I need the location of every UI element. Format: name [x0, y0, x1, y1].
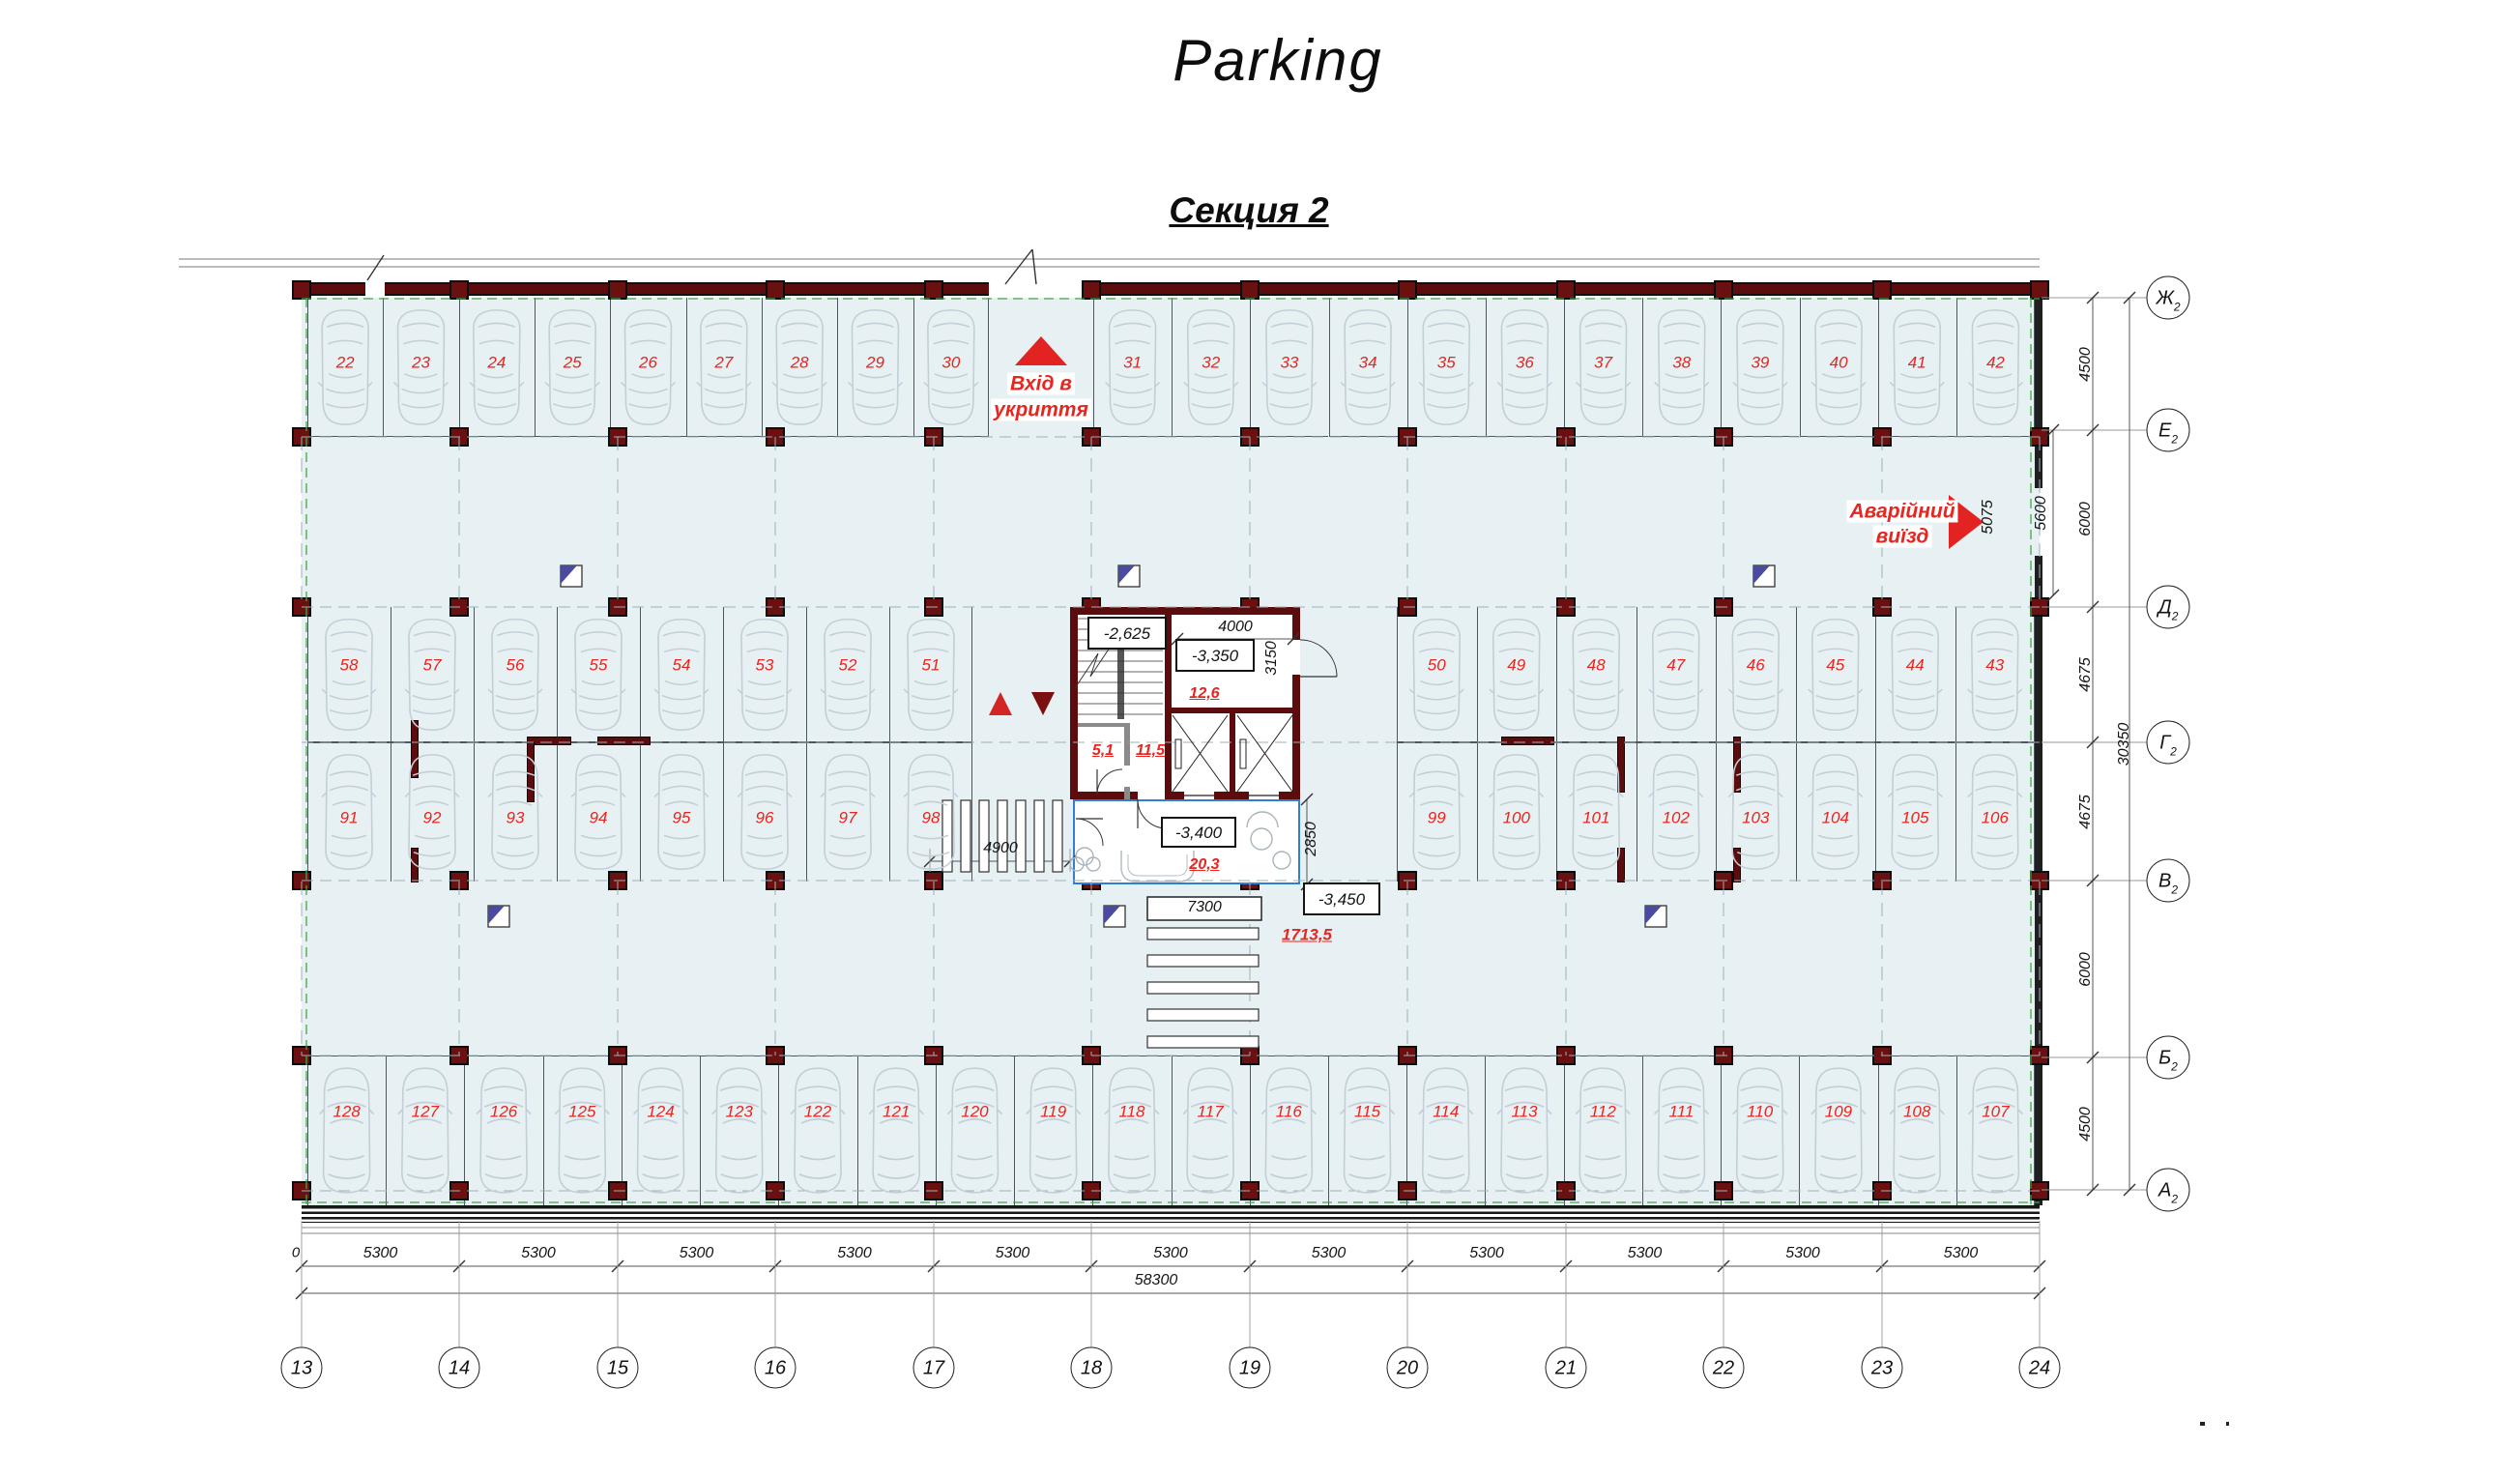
parking-space-number: 40	[1830, 355, 1848, 371]
bay-dimension: 5300	[1785, 1246, 1820, 1261]
parking-space-number: 95	[673, 810, 691, 826]
shelter-wall-segment	[1501, 737, 1554, 745]
structural-column	[1240, 427, 1260, 447]
bay-dimension: 5300	[521, 1246, 556, 1261]
parking-space	[1637, 607, 1717, 742]
axis-spacing-dimension: 4675	[2078, 795, 2094, 829]
structural-column	[449, 597, 469, 617]
structural-column	[608, 1181, 627, 1200]
parking-space-number: 45	[1826, 657, 1844, 674]
structural-column	[1082, 280, 1101, 300]
structural-column	[1714, 427, 1733, 447]
structural-column	[449, 1046, 469, 1065]
parking-space-number: 101	[1582, 810, 1609, 826]
shelter-entrance-label-line1: Вхід в	[1007, 373, 1075, 395]
parking-space	[1875, 607, 1955, 742]
core-wall	[1230, 708, 1235, 799]
parking-space	[391, 607, 474, 742]
core-partition	[1124, 723, 1130, 766]
level-mark-lobby: -3,400	[1161, 817, 1236, 848]
parking-space-number: 124	[647, 1104, 674, 1120]
parking-space-number: 22	[336, 355, 355, 371]
parking-space-number: 52	[839, 657, 857, 674]
structural-column	[766, 1046, 785, 1065]
parking-space-number: 34	[1359, 355, 1377, 371]
axis-spacing-dimension: 4500	[2078, 1107, 2094, 1142]
parking-space-number: 113	[1511, 1104, 1537, 1120]
structural-column	[766, 427, 785, 447]
bay-dimension: 5300	[1469, 1246, 1504, 1261]
parking-space-number: 112	[1590, 1104, 1616, 1120]
parking-space-number: 41	[1908, 355, 1926, 371]
parking-space-number: 48	[1587, 657, 1606, 674]
axis-bubble-subscript: 2	[2171, 1061, 2178, 1073]
parking-space	[889, 607, 972, 742]
parking-space-number: 119	[1040, 1104, 1066, 1120]
axis-bubble-bottom: 21	[1546, 1347, 1587, 1389]
parking-space-number: 38	[1672, 355, 1691, 371]
parking-space-number: 32	[1202, 355, 1220, 371]
structural-column	[292, 871, 311, 890]
structural-column	[1398, 427, 1417, 447]
parking-space-number: 30	[941, 355, 960, 371]
parking-space-number: 123	[726, 1104, 753, 1120]
structural-column	[924, 597, 943, 617]
parking-space-number: 118	[1118, 1104, 1144, 1120]
axis-spacing-dimension: 6000	[2078, 952, 2094, 987]
shelter-wall-segment	[411, 848, 419, 882]
parking-space-number: 114	[1433, 1104, 1459, 1120]
parking-space	[307, 1056, 386, 1205]
structural-column	[1556, 597, 1576, 617]
parking-space	[1716, 607, 1796, 742]
core-wall	[1292, 607, 1300, 640]
axis-bubble-subscript: 2	[2174, 302, 2181, 313]
parking-space-number: 122	[804, 1104, 831, 1120]
axis-bubble-bottom: 15	[597, 1347, 639, 1389]
dim-exit-width: 5075	[1981, 500, 1996, 535]
shelter-wall-segment	[411, 720, 419, 778]
dim-total-height: 30350	[2117, 723, 2132, 766]
dim-exit-bay: 5600	[2034, 496, 2049, 531]
structural-column	[292, 597, 311, 617]
parking-space-number: 31	[1123, 355, 1142, 371]
axis-bubble-bottom: 24	[2019, 1347, 2061, 1389]
parking-space	[1477, 607, 1557, 742]
structural-column	[292, 1181, 311, 1200]
axis-spacing-dimension: 6000	[2078, 502, 2094, 536]
structural-column	[1872, 1046, 1892, 1065]
structural-column	[2030, 1046, 2049, 1065]
parking-space-number: 58	[340, 657, 359, 674]
parking-space-number: 115	[1354, 1104, 1380, 1120]
parking-space-number: 36	[1516, 355, 1534, 371]
axis-bubble-right: В2	[2147, 859, 2190, 903]
structural-column	[2030, 280, 2049, 300]
exterior-wall-right	[2035, 298, 2042, 488]
parking-space-number: 51	[922, 657, 941, 674]
parking-space	[1172, 1056, 1250, 1205]
structural-column	[1240, 1046, 1260, 1065]
parking-space-number: 116	[1276, 1104, 1302, 1120]
parking-space	[474, 607, 557, 742]
parking-space-number: 102	[1663, 810, 1690, 826]
parking-space	[806, 607, 889, 742]
shelter-entrance-label-line2: укриття	[991, 399, 1091, 421]
structural-column	[449, 871, 469, 890]
bay-dimension: 5300	[1944, 1246, 1979, 1261]
parking-space-number: 109	[1825, 1104, 1852, 1120]
parking-space-number: 56	[507, 657, 525, 674]
structural-column	[1556, 1181, 1576, 1200]
area-label-lobby: 20,3	[1189, 857, 1219, 873]
axis-bubble-right: Е2	[2147, 409, 2190, 452]
structural-column	[608, 280, 627, 300]
parking-space	[1956, 1056, 2035, 1205]
structural-column	[1872, 427, 1892, 447]
shelter-wall-segment	[1733, 848, 1741, 882]
bay-dimension: 5300	[363, 1246, 398, 1261]
structural-column	[2030, 1181, 2049, 1200]
structural-column	[292, 280, 311, 300]
parking-space	[1796, 607, 1876, 742]
parking-space-number: 120	[961, 1104, 988, 1120]
structural-column	[292, 427, 311, 447]
structural-column	[1872, 280, 1892, 300]
emergency-exit-label-line1: Аварійний	[1846, 501, 1957, 523]
axis-bubble-bottom: 19	[1230, 1347, 1271, 1389]
parking-space-number: 107	[1982, 1104, 2009, 1120]
parking-space	[1406, 1056, 1485, 1205]
parking-space-number: 127	[412, 1104, 439, 1120]
core-wall	[1292, 675, 1300, 799]
parking-space-number: 126	[490, 1104, 517, 1120]
parking-space-number: 26	[639, 355, 657, 371]
axis-bubble-bottom: 13	[281, 1347, 323, 1389]
structural-column	[449, 1181, 469, 1200]
structural-column	[1714, 1181, 1733, 1200]
parking-space-number: 111	[1669, 1104, 1694, 1120]
parking-space-number: 121	[883, 1104, 910, 1120]
axis-bubble-subscript: 2	[2172, 611, 2179, 622]
parking-space-number: 29	[866, 355, 884, 371]
core-partition	[1124, 787, 1130, 799]
structural-column	[449, 427, 469, 447]
dim-room-depth: 3150	[1264, 641, 1280, 676]
emergency-exit-label-line2: виїзд	[1873, 526, 1932, 548]
parking-space	[1092, 1056, 1171, 1205]
structural-column	[924, 280, 943, 300]
parking-space-number: 44	[1906, 657, 1925, 674]
parking-space-number: 110	[1747, 1104, 1773, 1120]
parking-space	[778, 1056, 856, 1205]
area-label-parking: 1713,5	[1282, 927, 1332, 943]
exterior-wall-top	[385, 282, 989, 296]
level-mark-stair: -2,625	[1087, 617, 1167, 650]
structural-column	[608, 427, 627, 447]
dim-zero-marker: 0	[292, 1246, 300, 1260]
parking-space	[1556, 607, 1637, 742]
structural-column	[766, 1181, 785, 1200]
parking-space	[1250, 1056, 1328, 1205]
structural-column	[1556, 427, 1576, 447]
parking-space-number: 37	[1594, 355, 1612, 371]
parking-space	[640, 607, 723, 742]
structural-column	[1398, 1181, 1417, 1200]
core-wall	[1165, 708, 1300, 713]
axis-bubble-bottom: 23	[1862, 1347, 1903, 1389]
bay-dimension: 5300	[1153, 1246, 1188, 1261]
dim-lobby-depth: 2850	[1304, 822, 1319, 856]
parking-space-number: 27	[714, 355, 733, 371]
level-mark-aisle: -3,450	[1303, 882, 1380, 915]
parking-space-number: 55	[590, 657, 608, 674]
parking-space	[936, 1056, 1014, 1205]
parking-space-number: 97	[839, 810, 857, 826]
parking-space-number: 49	[1507, 657, 1525, 674]
dim-total-width: 58300	[1135, 1273, 1178, 1288]
axis-bubble-bottom: 14	[439, 1347, 480, 1389]
bay-dimension: 5300	[680, 1246, 714, 1261]
core-wall	[1279, 792, 1300, 799]
axis-bubble-bottom: 18	[1071, 1347, 1113, 1389]
structural-column	[766, 597, 785, 617]
section-subtitle: Секция 2	[1169, 191, 1328, 231]
axis-bubble-right: А2	[2147, 1169, 2190, 1212]
parking-space-number: 35	[1437, 355, 1456, 371]
structural-column	[1398, 597, 1417, 617]
structural-column	[766, 871, 785, 890]
axis-spacing-dimension: 4500	[2078, 347, 2094, 382]
axis-bubble-bottom: 22	[1703, 1347, 1745, 1389]
structural-column	[1240, 280, 1260, 300]
parking-floor-plan: Parking Секция 2 22232425262728293031323…	[0, 0, 2520, 1475]
axis-bubble-bottom: 17	[913, 1347, 955, 1389]
parking-space-number: 100	[1503, 810, 1530, 826]
axis-bubble-right: Б2	[2147, 1036, 2190, 1080]
level-mark-room: -3,350	[1175, 639, 1255, 672]
core-wall	[1070, 607, 1300, 615]
structural-column	[1872, 1181, 1892, 1200]
shelter-wall-segment	[1733, 737, 1741, 793]
axis-bubble-right: Ж2	[2147, 276, 2190, 320]
structural-column	[1082, 1181, 1101, 1200]
parking-space	[622, 1056, 700, 1205]
core-wall	[1070, 607, 1078, 799]
parking-space	[1955, 607, 2036, 742]
axis-spacing-dimension: 4675	[2078, 657, 2094, 692]
structural-column	[924, 1046, 943, 1065]
shelter-wall-segment	[1617, 737, 1625, 793]
structural-column	[1556, 1046, 1576, 1065]
structural-column	[924, 1181, 943, 1200]
parking-space	[1799, 1056, 1877, 1205]
parking-space-number: 23	[412, 355, 430, 371]
axis-bubble-bottom: 20	[1387, 1347, 1429, 1389]
structural-column	[1714, 280, 1733, 300]
structural-column	[1398, 280, 1417, 300]
parking-space-number: 108	[1903, 1104, 1930, 1120]
structural-column	[449, 280, 469, 300]
parking-space-number: 46	[1747, 657, 1765, 674]
bay-dimension: 5300	[1312, 1246, 1347, 1261]
structural-column	[1872, 871, 1892, 890]
bay-dimension: 5300	[1628, 1246, 1663, 1261]
parking-space	[464, 1056, 542, 1205]
parking-space-number: 39	[1751, 355, 1769, 371]
plan-title: Parking	[1173, 29, 1382, 93]
parking-space-number: 125	[568, 1104, 595, 1120]
structural-column	[1556, 871, 1576, 890]
structural-column	[924, 427, 943, 447]
structural-column	[2030, 871, 2049, 890]
parking-space	[1642, 1056, 1721, 1205]
parking-space-number: 53	[756, 657, 774, 674]
structural-column	[608, 871, 627, 890]
parking-space-number: 25	[564, 355, 582, 371]
parking-space	[1485, 1056, 1563, 1205]
axis-bubble-subscript: 2	[2171, 1194, 2178, 1205]
parking-space	[1328, 1056, 1406, 1205]
core-partition	[1078, 723, 1124, 727]
parking-space	[1397, 607, 1477, 742]
parking-space-number: 128	[333, 1104, 360, 1120]
area-label-room: 12,6	[1189, 686, 1219, 702]
bay-dimension: 5300	[996, 1246, 1030, 1261]
parking-space-number: 54	[673, 657, 691, 674]
structural-column	[292, 1046, 311, 1065]
axis-bubble-subscript: 2	[2170, 746, 2177, 758]
parking-space	[723, 607, 806, 742]
axis-bubble-subscript: 2	[2171, 434, 2178, 446]
parking-space-number: 91	[340, 810, 359, 826]
shelter-wall-segment	[527, 742, 535, 802]
structural-column	[2030, 427, 2049, 447]
shelter-wall-segment	[597, 737, 651, 745]
parking-space-number: 50	[1428, 657, 1446, 674]
parking-space	[307, 607, 391, 742]
structural-column	[1398, 1046, 1417, 1065]
parking-space-number: 106	[1982, 810, 2009, 826]
parking-space-number: 24	[487, 355, 506, 371]
parking-space-number: 28	[791, 355, 809, 371]
parking-space-number: 96	[756, 810, 774, 826]
parking-space-number: 92	[423, 810, 442, 826]
axis-bubble-right: Г2	[2147, 721, 2190, 765]
structural-column	[1556, 280, 1576, 300]
structural-column	[1714, 871, 1733, 890]
structural-column	[924, 871, 943, 890]
shelter-wall-segment	[1617, 848, 1625, 882]
parking-space-number: 57	[423, 657, 442, 674]
structural-column	[1714, 597, 1733, 617]
structural-column	[1714, 1046, 1733, 1065]
parking-space-number: 103	[1742, 810, 1769, 826]
parking-space-number: 93	[507, 810, 525, 826]
structural-column	[766, 280, 785, 300]
bay-dimension: 5300	[837, 1246, 872, 1261]
exterior-wall-bottom-hatched	[302, 1205, 2040, 1223]
dim-room-width: 4000	[1218, 620, 1253, 635]
parking-space-number: 94	[590, 810, 608, 826]
dim-ramp: 4900	[983, 841, 1018, 856]
structural-column	[1082, 427, 1101, 447]
parking-space	[557, 607, 640, 742]
axis-bubble-right: Д2	[2147, 586, 2190, 629]
parking-space-number: 99	[1428, 810, 1446, 826]
parking-space-number: 47	[1666, 657, 1685, 674]
axis-bubble-subscript: 2	[2171, 884, 2178, 896]
area-label-wc: 5,1	[1092, 743, 1114, 759]
parking-space-number: 105	[1901, 810, 1928, 826]
axis-bubble-bottom: 16	[755, 1347, 797, 1389]
structural-column	[1398, 871, 1417, 890]
structural-column	[1872, 597, 1892, 617]
parking-space-number: 43	[1985, 657, 2004, 674]
parking-space-number: 42	[1986, 355, 2005, 371]
structural-column	[1082, 1046, 1101, 1065]
parking-space-number: 98	[922, 810, 941, 826]
structural-column	[2030, 597, 2049, 617]
structural-column	[608, 597, 627, 617]
area-label-corridor: 11,5	[1136, 743, 1165, 759]
structural-column	[608, 1046, 627, 1065]
dim-crosswalk: 7300	[1187, 900, 1222, 915]
parking-space-number: 117	[1198, 1104, 1224, 1120]
parking-space-number: 33	[1280, 355, 1298, 371]
structural-column	[1240, 1181, 1260, 1200]
parking-space-number: 104	[1822, 810, 1849, 826]
